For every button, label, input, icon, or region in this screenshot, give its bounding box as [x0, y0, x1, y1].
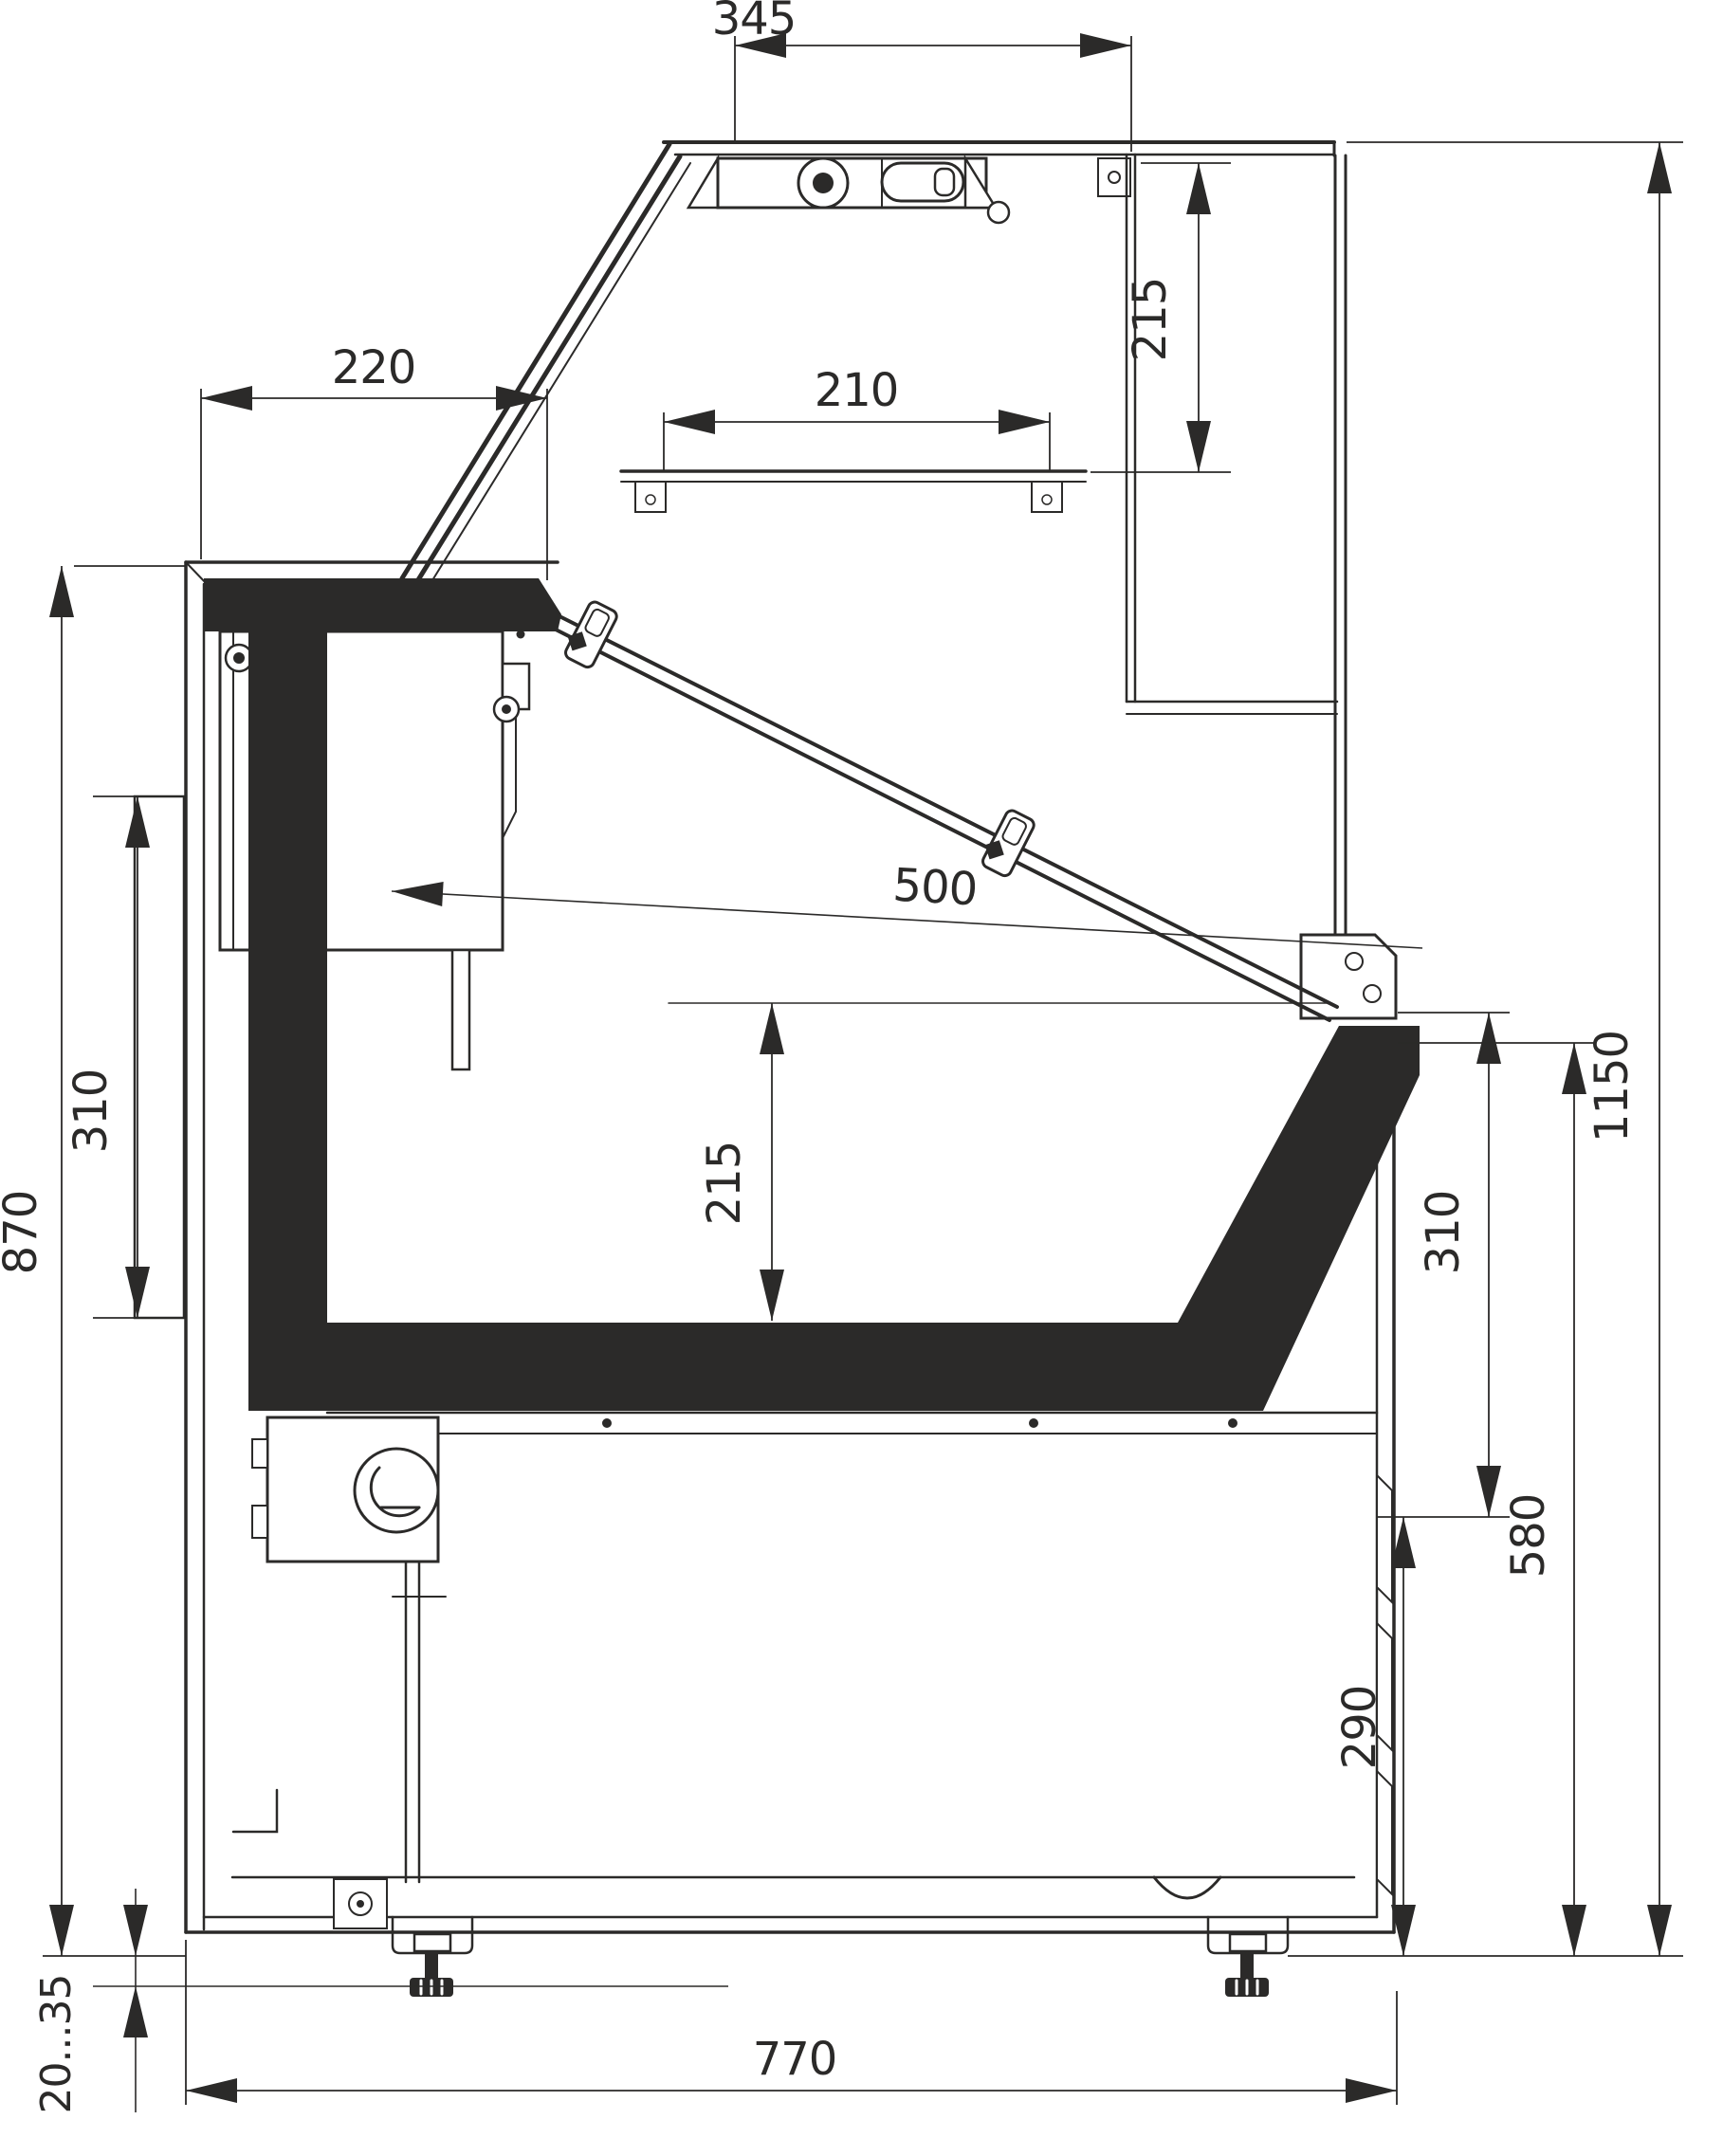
- dim-understorage-height-label: 580: [1502, 1494, 1555, 1579]
- dim-counter-height: [43, 566, 186, 1956]
- rear-louvers: [1377, 1475, 1392, 1894]
- dim-canopy-height-label: 215: [1124, 278, 1177, 362]
- hanging-rod: [452, 950, 469, 1069]
- canopy-band: [204, 578, 561, 639]
- rear-glass: [1335, 155, 1346, 937]
- dim-foot-adjust-label: 20...35: [32, 1975, 81, 2114]
- dim-rear-opening-height-label: 310: [1417, 1191, 1470, 1275]
- interior-shelf: [621, 471, 1086, 512]
- slot-oblong: [882, 163, 963, 201]
- dim-deck-depth-label: 500: [891, 859, 979, 917]
- left-side-panel: [135, 796, 184, 1318]
- adjustable-foot-right: [1208, 1917, 1288, 1997]
- front-glass: [402, 144, 690, 593]
- dim-foot-adjust: [93, 1889, 728, 2112]
- dim-base-height-label: 290: [1333, 1686, 1386, 1770]
- dim-front-overhang: [201, 386, 547, 580]
- dim-total-depth-label: 770: [753, 2033, 837, 2086]
- dim-total-height-label: 1150: [1586, 1031, 1639, 1142]
- drain-notch: [1154, 1877, 1220, 1898]
- drawing-sheet: 345 220 210 215 500 215 870 310 20...35 …: [0, 0, 1723, 2156]
- adjustable-foot-left: [334, 1879, 472, 1997]
- dim-understorage-height: [1398, 1043, 1595, 1956]
- dim-side-panel-height: [93, 796, 184, 1318]
- lid-mechanism: [688, 158, 1009, 223]
- dim-well-depth-label: 215: [698, 1142, 751, 1226]
- case-structure: [135, 142, 1420, 1997]
- dim-shelf-width-label: 210: [815, 364, 899, 417]
- dim-side-panel-height-label: 310: [64, 1069, 118, 1154]
- canopy-rear-wall: [1127, 155, 1337, 714]
- lower-compartment: [232, 1413, 1377, 1898]
- dim-top-width: [735, 33, 1131, 152]
- display-deck: [556, 616, 1337, 1020]
- dim-top-width-label: 345: [712, 0, 797, 46]
- dim-front-overhang-label: 220: [332, 341, 416, 394]
- dim-shelf-width: [664, 410, 1050, 471]
- rear-deck-bracket: [1301, 935, 1396, 1018]
- dim-well-depth: [760, 1003, 784, 1321]
- dim-counter-height-label: 870: [0, 1191, 47, 1275]
- technical-drawing: 345 220 210 215 500 215 870 310 20...35 …: [0, 0, 1723, 2156]
- top-lid: [664, 142, 1334, 155]
